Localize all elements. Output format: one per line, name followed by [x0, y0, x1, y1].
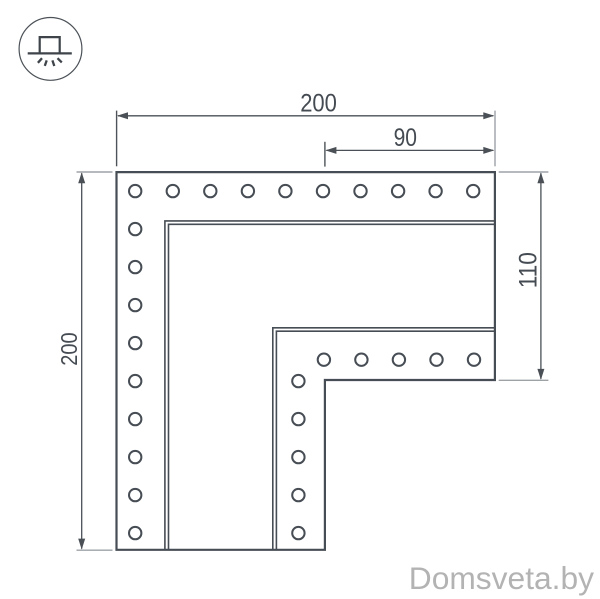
svg-text:Domsveta.by: Domsveta.by: [409, 560, 594, 596]
svg-text:90: 90: [394, 123, 417, 151]
svg-text:110: 110: [515, 252, 543, 288]
svg-text:200: 200: [56, 332, 83, 365]
svg-text:200: 200: [300, 89, 337, 117]
